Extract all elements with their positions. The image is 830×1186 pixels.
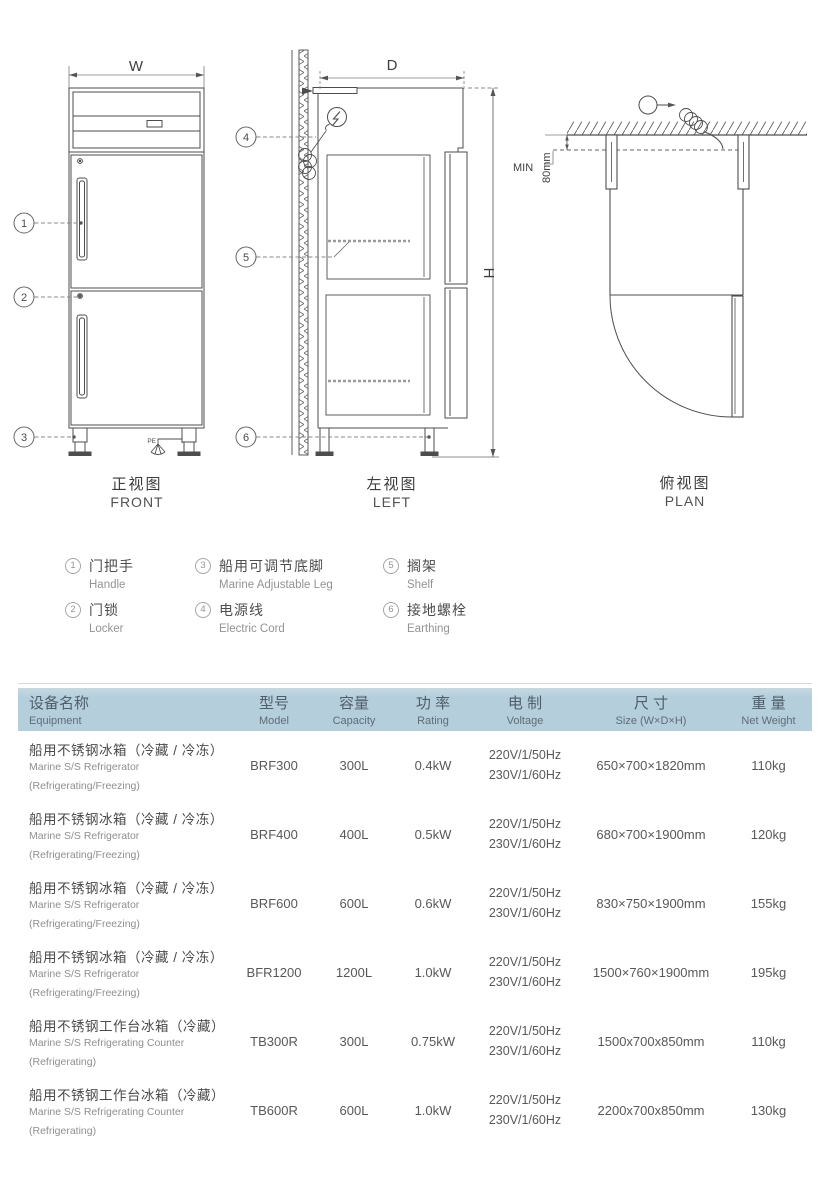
table-row: 船用不锈钢冰箱（冷藏 / 冷冻） Marine S/S Refrigerator… [18,800,812,869]
size-cell: 680×700×1900mm [577,827,725,842]
legend-item-cord: 4 电源线 Electric Cord [195,600,383,635]
table-row: 船用不锈钢工作台冰箱（冷藏） Marine S/S Refrigerating … [18,1076,812,1145]
table-header: 设备名称 Equipment 型号 Model 容量 Capacity 功 率 … [18,688,812,731]
voltage-cell: 220V/1/50Hz 230V/1/60Hz [473,953,577,992]
legend-en-earthing: Earthing [407,623,467,635]
capacity-cell: 400L [315,827,393,842]
plan-title-zh: 俯视图 [659,475,710,492]
callout-6-number: 6 [243,432,249,444]
legend-num-6: 6 [383,602,399,618]
capacity-cell: 600L [315,896,393,911]
wall-hatch-strip [299,50,308,455]
front-title-zh: 正视图 [111,476,162,493]
clearance-label: 80mm [541,152,553,183]
size-cell: 1500×760×1900mm [577,965,725,980]
callout-1-number: 1 [21,218,27,230]
table-top-rule [18,683,812,684]
rating-cell: 0.75kW [393,1034,473,1049]
left-lower-door [445,288,467,418]
legend-en-handle: Handle [89,579,134,591]
left-upper-door [445,152,467,284]
front-vent [147,121,162,128]
door-swing-arc [610,295,732,417]
wall-hatching [567,122,807,136]
left-view-legs [316,428,438,456]
legend-en-cord: Electric Cord [219,623,285,635]
legend-en-locker: Locker [89,623,124,635]
callout-5: 5 [236,247,256,267]
voltage-cell: 220V/1/50Hz 230V/1/60Hz [473,815,577,854]
equipment-cell: 船用不锈钢工作台冰箱（冷藏） Marine S/S Refrigerating … [18,1084,233,1137]
model-cell: TB600R [233,1103,315,1118]
table-row: 船用不锈钢工作台冰箱（冷藏） Marine S/S Refrigerating … [18,1007,812,1076]
weight-cell: 110kg [725,1034,812,1049]
callout-2: 2 [14,287,34,307]
size-cell: 830×750×1900mm [577,896,725,911]
width-dim-label: W [129,58,144,75]
model-cell: BFR1200 [233,965,315,980]
front-lower-door [71,291,202,425]
weight-cell: 130kg [725,1103,812,1118]
column-header-capacity: 容量 Capacity [315,692,393,727]
weight-cell: 110kg [725,758,812,773]
rating-cell: 1.0kW [393,965,473,980]
upper-door-handle [77,178,87,260]
lightning-icon [333,112,341,126]
model-cell: BRF300 [233,758,315,773]
plan-title-en: PLAN [665,493,706,509]
front-upper-door [71,155,202,288]
legend-zh-shelf: 搁架 [407,556,437,576]
front-leader-lines [35,223,81,437]
left-title-en: LEFT [373,494,411,510]
callout-4-number: 4 [243,132,249,144]
legend-column-3: 5 搁架 Shelf 6 接地螺栓 Earthing [383,556,467,644]
size-cell: 2200x700x850mm [577,1103,725,1118]
column-header-model: 型号 Model [233,692,315,727]
capacity-cell: 300L [315,1034,393,1049]
legend-item-handle: 1 门把手 Handle [65,556,195,591]
size-cell: 650×700×1820mm [577,758,725,773]
rating-cell: 0.5kW [393,827,473,842]
rating-cell: 0.6kW [393,896,473,911]
table-row: 船用不锈钢冰箱（冷藏 / 冷冻） Marine S/S Refrigerator… [18,938,812,1007]
front-left-leg [69,428,91,456]
model-cell: TB300R [233,1034,315,1049]
capacity-cell: 600L [315,1103,393,1118]
front-body [69,152,204,428]
depth-dim-label: D [387,57,398,74]
voltage-cell: 220V/1/50Hz 230V/1/60Hz [473,746,577,785]
left-title-zh: 左视图 [366,476,417,493]
legend-item-shelf: 5 搁架 Shelf [383,556,467,591]
callout-2-number: 2 [21,292,27,304]
column-header-voltage: 电 制 Voltage [473,692,577,727]
legend-zh-leg: 船用可调节底脚 [219,556,333,576]
left-leader-lines [257,137,430,437]
front-view-drawing: 1 2 3 W PE 正视图 FRONT [10,45,250,520]
front-cabinet [69,66,204,456]
legend-num-2: 2 [65,602,81,618]
column-header-rating: 功 率 Rating [393,692,473,727]
lower-compartment [326,295,430,415]
legend-item-earthing: 6 接地螺栓 Earthing [383,600,467,635]
model-cell: BRF400 [233,827,315,842]
pe-label: PE [147,438,156,445]
spec-table: 设备名称 Equipment 型号 Model 容量 Capacity 功 率 … [18,688,812,1145]
size-cell: 1500x700x850mm [577,1034,725,1049]
column-header-size: 尺 寸 Size (W×D×H) [577,692,725,727]
capacity-cell: 1200L [315,965,393,980]
front-title-en: FRONT [110,494,163,510]
min-label: MIN [513,162,533,174]
open-door [732,296,743,417]
lower-door-handle [77,315,87,398]
legend-zh-cord: 电源线 [219,600,285,620]
height-dim-label: H [480,268,497,279]
left-view-drawing: 4 5 6 D H 左视图 LEFT [232,45,510,520]
weight-cell: 195kg [725,965,812,980]
legend-zh-earthing: 接地螺栓 [407,600,467,620]
voltage-cell: 220V/1/50Hz 230V/1/60Hz [473,884,577,923]
front-right-leg [178,428,200,456]
equipment-cell: 船用不锈钢冰箱（冷藏 / 冷冻） Marine S/S Refrigerator… [18,808,233,861]
legend-zh-handle: 门把手 [89,556,134,576]
legend-item-leg: 3 船用可调节底脚 Marine Adjustable Leg [195,556,383,591]
plug-icon [639,96,657,114]
plan-view-drawing: MIN 80mm 俯视图 PLAN [505,60,820,520]
table-body: 船用不锈钢冰箱（冷藏 / 冷冻） Marine S/S Refrigerator… [18,731,812,1145]
voltage-cell: 220V/1/50Hz 230V/1/60Hz [473,1091,577,1130]
upper-compartment [327,155,430,279]
voltage-cell: 220V/1/50Hz 230V/1/60Hz [473,1022,577,1061]
callout-3: 3 [14,427,34,447]
equipment-cell: 船用不锈钢冰箱（冷藏 / 冷冻） Marine S/S Refrigerator… [18,946,233,999]
callout-1: 1 [14,213,34,233]
weight-cell: 120kg [725,827,812,842]
front-top-section [69,88,204,152]
callout-4: 4 [236,127,256,147]
capacity-cell: 300L [315,758,393,773]
column-header-equipment: 设备名称 Equipment [18,692,233,727]
legend-column-1: 1 门把手 Handle 2 门锁 Locker [65,556,195,644]
legend-item-locker: 2 门锁 Locker [65,600,195,635]
table-row: 船用不锈钢冰箱（冷藏 / 冷冻） Marine S/S Refrigerator… [18,731,812,800]
model-cell: BRF600 [233,896,315,911]
callout-3-number: 3 [21,432,27,444]
legend-en-leg: Marine Adjustable Leg [219,579,333,591]
column-header-weight: 重 量 Net Weight [725,692,812,727]
equipment-cell: 船用不锈钢工作台冰箱（冷藏） Marine S/S Refrigerating … [18,1015,233,1068]
rating-cell: 1.0kW [393,1103,473,1118]
legend-column-2: 3 船用可调节底脚 Marine Adjustable Leg 4 电源线 El… [195,556,383,644]
legend-num-5: 5 [383,558,399,574]
legend: 1 门把手 Handle 2 门锁 Locker 3 船用可调节底脚 Marin… [65,556,467,644]
legend-en-shelf: Shelf [407,579,437,591]
legend-num-4: 4 [195,602,211,618]
rating-cell: 0.4kW [393,758,473,773]
catalog-page: 1 2 3 W PE 正视图 FRONT [0,0,830,1186]
callout-6: 6 [236,427,256,447]
left-cabinet [292,50,467,456]
table-row: 船用不锈钢冰箱（冷藏 / 冷冻） Marine S/S Refrigerator… [18,869,812,938]
callout-5-number: 5 [243,252,249,264]
plan-cabinet [606,135,749,417]
weight-cell: 155kg [725,896,812,911]
equipment-cell: 船用不锈钢冰箱（冷藏 / 冷冻） Marine S/S Refrigerator… [18,739,233,792]
legend-num-1: 1 [65,558,81,574]
legend-zh-locker: 门锁 [89,600,124,620]
equipment-cell: 船用不锈钢冰箱（冷藏 / 冷冻） Marine S/S Refrigerator… [18,877,233,930]
legend-num-3: 3 [195,558,211,574]
